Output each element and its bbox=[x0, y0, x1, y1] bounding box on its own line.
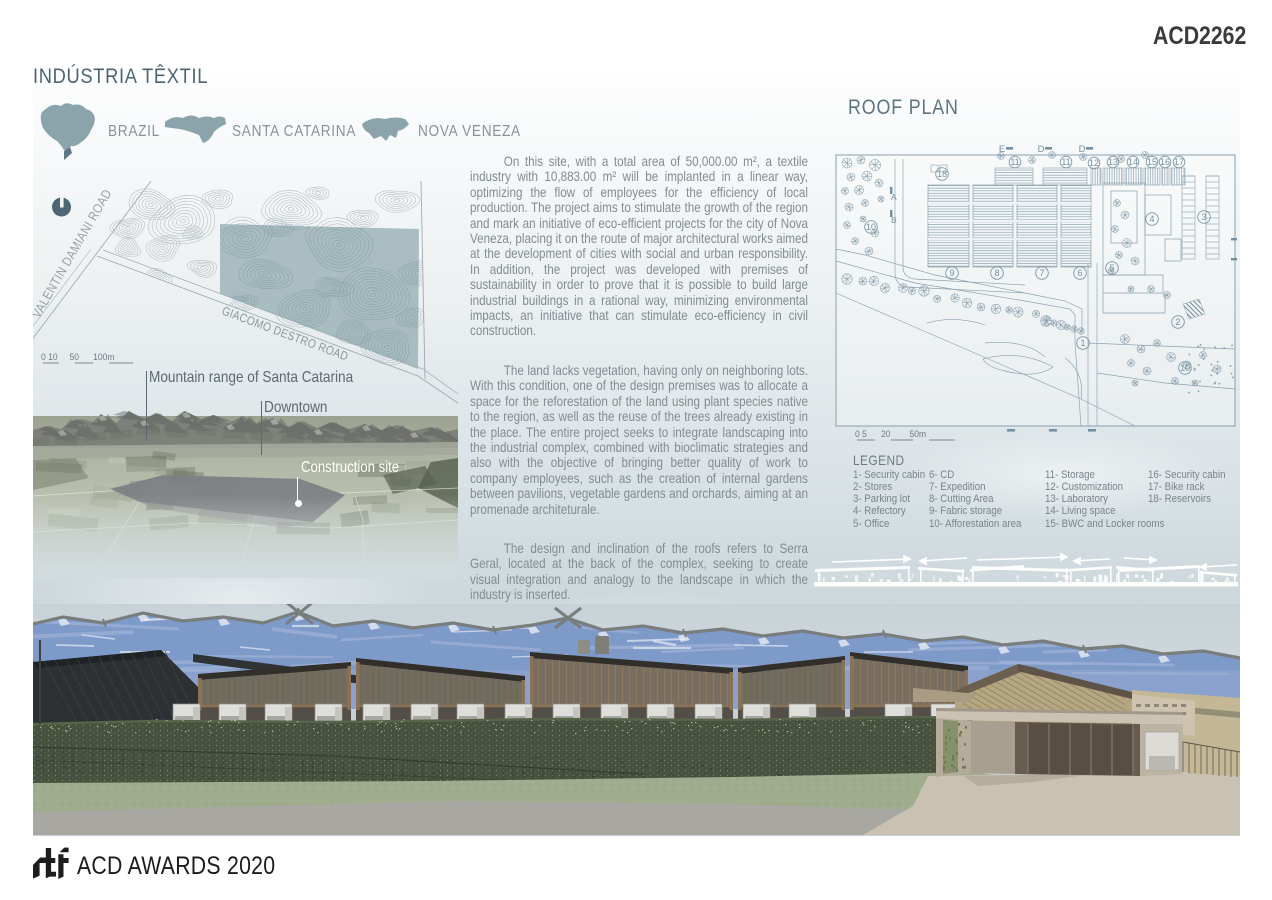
svg-text:9: 9 bbox=[949, 268, 954, 278]
svg-text:SANTA CATARINA: SANTA CATARINA bbox=[232, 123, 356, 140]
svg-text:11: 11 bbox=[1010, 157, 1019, 167]
svg-text:18: 18 bbox=[937, 169, 947, 179]
svg-text:0 5 20 50m: 0 5 20 50m bbox=[855, 429, 926, 440]
svg-text:2: 2 bbox=[1175, 317, 1180, 327]
svg-text:12: 12 bbox=[1089, 158, 1099, 168]
svg-text:3: 3 bbox=[1201, 212, 1206, 222]
svg-text:NOVA VENEZA: NOVA VENEZA bbox=[418, 123, 521, 140]
svg-text:15: 15 bbox=[1147, 157, 1157, 167]
svg-text:8: 8 bbox=[994, 268, 999, 278]
svg-text:6: 6 bbox=[1077, 268, 1082, 278]
svg-text:16: 16 bbox=[1160, 157, 1170, 167]
svg-text:E: E bbox=[999, 144, 1005, 155]
svg-text:4: 4 bbox=[1149, 214, 1154, 224]
svg-text:14: 14 bbox=[1128, 157, 1138, 167]
svg-text:D: D bbox=[1038, 144, 1045, 155]
svg-text:11: 11 bbox=[1061, 157, 1070, 167]
svg-text:17: 17 bbox=[1174, 157, 1184, 167]
svg-text:VALENTIN DAMIANI ROAD: VALENTIN DAMIANI ROAD bbox=[33, 187, 115, 321]
svg-text:13: 13 bbox=[1108, 157, 1118, 167]
svg-text:0 10 50 100m: 0 10 50 100m bbox=[41, 352, 114, 363]
svg-text:5: 5 bbox=[1109, 263, 1114, 273]
svg-text:10: 10 bbox=[1180, 363, 1190, 373]
svg-text:7: 7 bbox=[1039, 268, 1044, 278]
svg-text:10: 10 bbox=[866, 222, 876, 232]
svg-text:BRAZIL: BRAZIL bbox=[108, 123, 160, 140]
svg-text:1: 1 bbox=[1080, 338, 1085, 348]
